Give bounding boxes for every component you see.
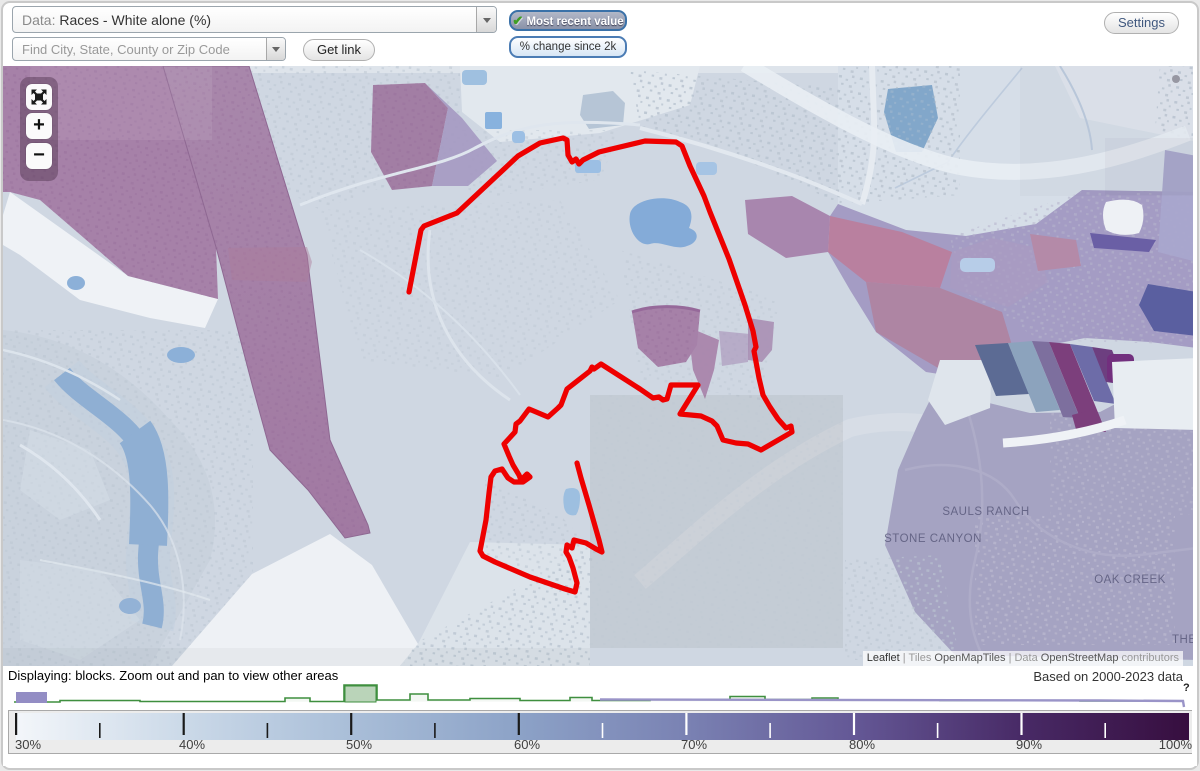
svg-text:60%: 60% — [514, 737, 540, 752]
svg-text:50%: 50% — [346, 737, 372, 752]
svg-text:30%: 30% — [15, 737, 41, 752]
svg-text:THE: THE — [1172, 634, 1193, 646]
svg-text:OAK CREEK: OAK CREEK — [1094, 574, 1166, 586]
svg-text:40%: 40% — [179, 737, 205, 752]
svg-text:?: ? — [1183, 682, 1190, 694]
svg-text:80%: 80% — [849, 737, 875, 752]
svg-text:90%: 90% — [1016, 737, 1042, 752]
svg-text:STONE CANYON: STONE CANYON — [884, 533, 982, 545]
svg-text:SAULS RANCH: SAULS RANCH — [942, 506, 1029, 518]
svg-text:100%: 100% — [1159, 737, 1192, 752]
svg-text:70%: 70% — [681, 737, 707, 752]
